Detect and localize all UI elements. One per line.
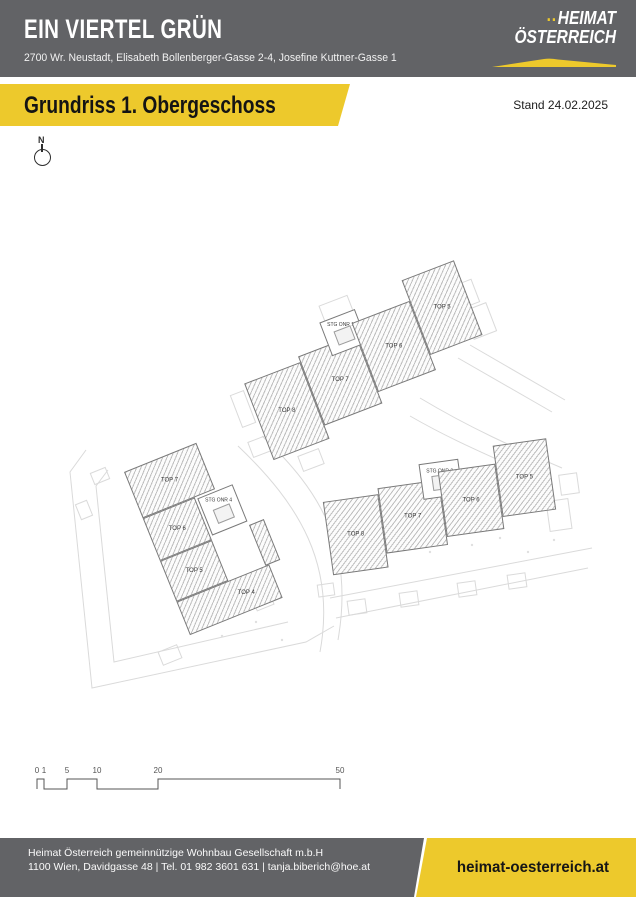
unit-label: TOP 8 [278, 408, 295, 414]
unit-label: TOP 6 [385, 344, 402, 350]
scale-label-1: 1 [42, 766, 46, 775]
unit-label: TOP 5 [434, 305, 451, 311]
unit-label: TOP 4 [237, 590, 254, 596]
unit-label: TOP 5 [516, 475, 533, 481]
unit-label: TOP 6 [462, 497, 479, 503]
footer-website-block: heimat-oesterreich.at [416, 838, 636, 897]
scale-label-20: 20 [154, 766, 163, 775]
unit-label: TOP 8 [347, 532, 364, 538]
unit-label: TOP 5 [186, 568, 203, 574]
stair-core [334, 326, 356, 346]
website-link[interactable]: heimat-oesterreich.at [436, 838, 630, 897]
scale-label-50: 50 [336, 766, 345, 775]
scale-label-10: 10 [93, 766, 102, 775]
unit-top-8: TOP 8 [323, 494, 389, 575]
scale-label-5: 5 [65, 766, 69, 775]
footer-contact: 1100 Wien, Davidgasse 48 | Tel. 01 982 3… [28, 861, 370, 873]
unit-top-4-wing [249, 519, 280, 566]
unit-label: TOP 7 [404, 514, 421, 520]
plan-sheet-page: EIN VIERTEL GRÜN 2700 Wr. Neustadt, Elis… [0, 0, 636, 900]
floor-plan: TOP 8 TOP 7 STG ONR 1 TOP 6 TOP 5 TOP 7 … [0, 130, 636, 760]
unit-label: TOP 7 [161, 478, 178, 484]
stair-core [213, 503, 235, 524]
scale-bar: 0 1 5 10 20 50 [30, 764, 360, 796]
footer-company: Heimat Österreich gemeinnützige Wohnbau … [28, 847, 323, 859]
scale-bar-graphic [30, 764, 360, 796]
unit-label: TOP 6 [169, 526, 186, 532]
unit-top-6: TOP 6 [438, 464, 505, 537]
scale-label-0: 0 [35, 766, 39, 775]
unit-label: TOP 7 [332, 377, 349, 383]
unit-top-5: TOP 5 [493, 438, 556, 517]
